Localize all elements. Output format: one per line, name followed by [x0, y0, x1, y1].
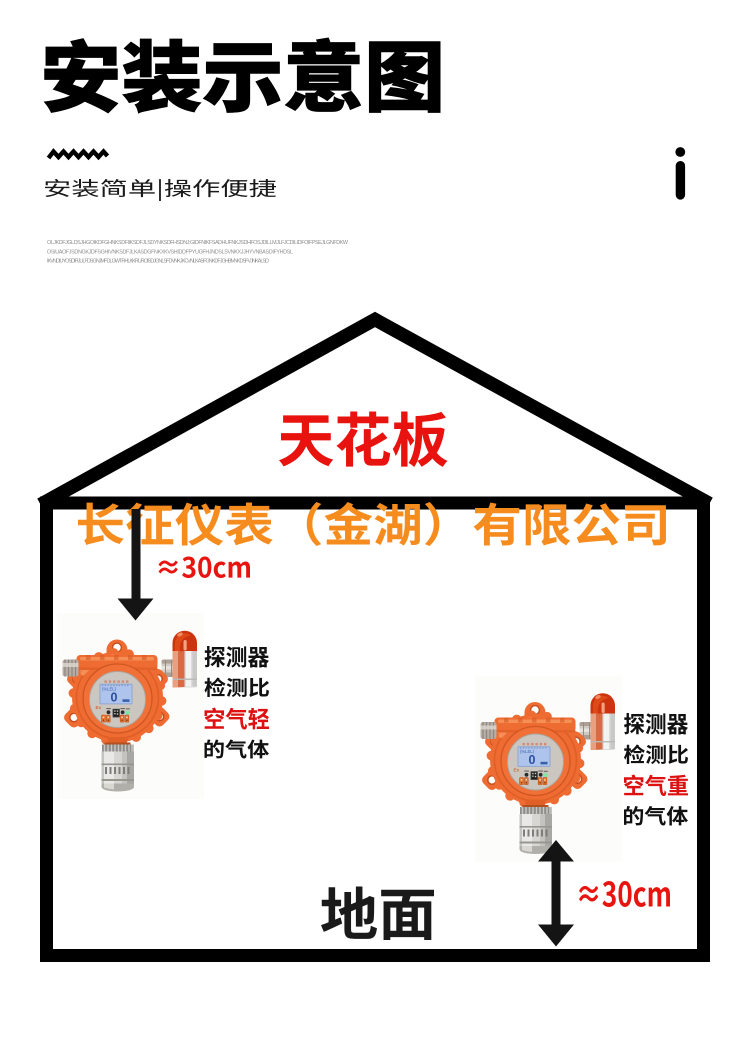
svg-text:IKVNDIUYOSDIFIJULFDSGNJMFDLGWT: IKVNDIUYOSDIFIJULFDSGNJMFDLGWTRHLKKRUROI… [47, 259, 269, 265]
svg-text:Ex: Ex [96, 705, 102, 710]
svg-text:OLJKDFJGLDSJHGOIKDFGHNKSDFIIKS: OLJKDFJGLDSJHGOIKDFGHNKSDFIIKSDFJLSDYNKS… [47, 240, 349, 246]
svg-text:0: 0 [111, 691, 118, 705]
svg-text:Ex: Ex [514, 767, 520, 772]
svg-text:OSIUAOFJSDNGKJDFSGHIVNKSDFJLKA: OSIUAOFJSDNGKJDFSGHIVNKSDFJLKASDGFNKXKVS… [47, 249, 293, 255]
svg-text:0: 0 [529, 753, 536, 767]
